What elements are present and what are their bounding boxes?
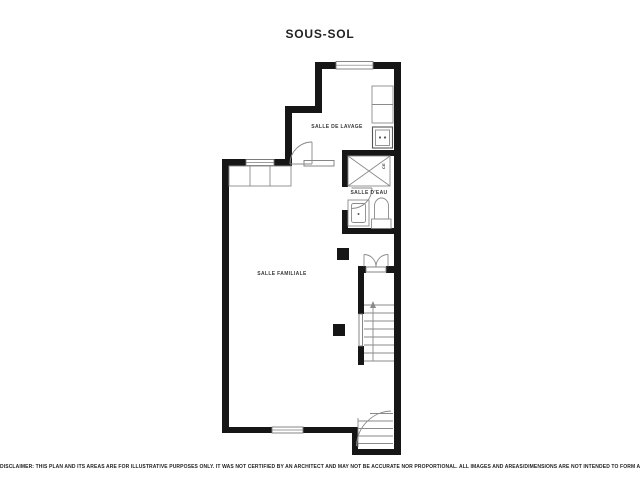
washer-knob: [379, 136, 381, 138]
floor-plan-page: SOUS-SOL: [0, 0, 640, 480]
windows: [246, 62, 386, 434]
disclaimer-text: DISCLAIMER: THIS PLAN AND ITS AREAS ARE …: [0, 464, 640, 470]
threshold-closet-doors: [366, 267, 386, 272]
washer-inner: [376, 130, 390, 146]
column-post: [333, 324, 345, 336]
door-arc-closet-left: [364, 255, 376, 267]
door-arc-closet-right: [376, 255, 388, 267]
label-water-heater: CE: [382, 160, 386, 172]
threshold-laundry-door: [304, 161, 334, 167]
columns: [333, 248, 349, 336]
column-post: [337, 248, 349, 260]
wall-closet-header-left: [358, 266, 366, 273]
label-bathroom: SALLE D'EAU: [330, 191, 408, 196]
stair-railing: [359, 314, 363, 346]
wall-waterheater-top: [342, 150, 394, 156]
wall-stair-left-upper: [358, 273, 364, 314]
stair-up-arrow: [370, 301, 376, 308]
toilet-tank: [372, 219, 392, 229]
walls: [222, 62, 401, 455]
wall-stair-left-lower: [358, 346, 364, 365]
wall-bathroom-left-upper: [342, 150, 348, 187]
label-laundry-room: SALLE DE LAVAGE: [287, 125, 387, 130]
wall-stair-bumpout-bottom: [352, 449, 401, 455]
wall-closet-header-right: [386, 266, 394, 273]
floor-plan-drawing: [0, 0, 640, 480]
stairs-main: [364, 301, 394, 361]
wall-left: [222, 159, 229, 433]
wall-right: [394, 62, 401, 455]
sink-drain: [358, 213, 360, 215]
label-family-room: SALLE FAMILIALE: [222, 272, 342, 277]
toilet-bowl: [375, 198, 389, 219]
stairs-curved: [357, 411, 394, 447]
washer-knob: [384, 136, 386, 138]
wall-laundry-left: [315, 62, 322, 113]
counter-family-room: [229, 166, 291, 186]
